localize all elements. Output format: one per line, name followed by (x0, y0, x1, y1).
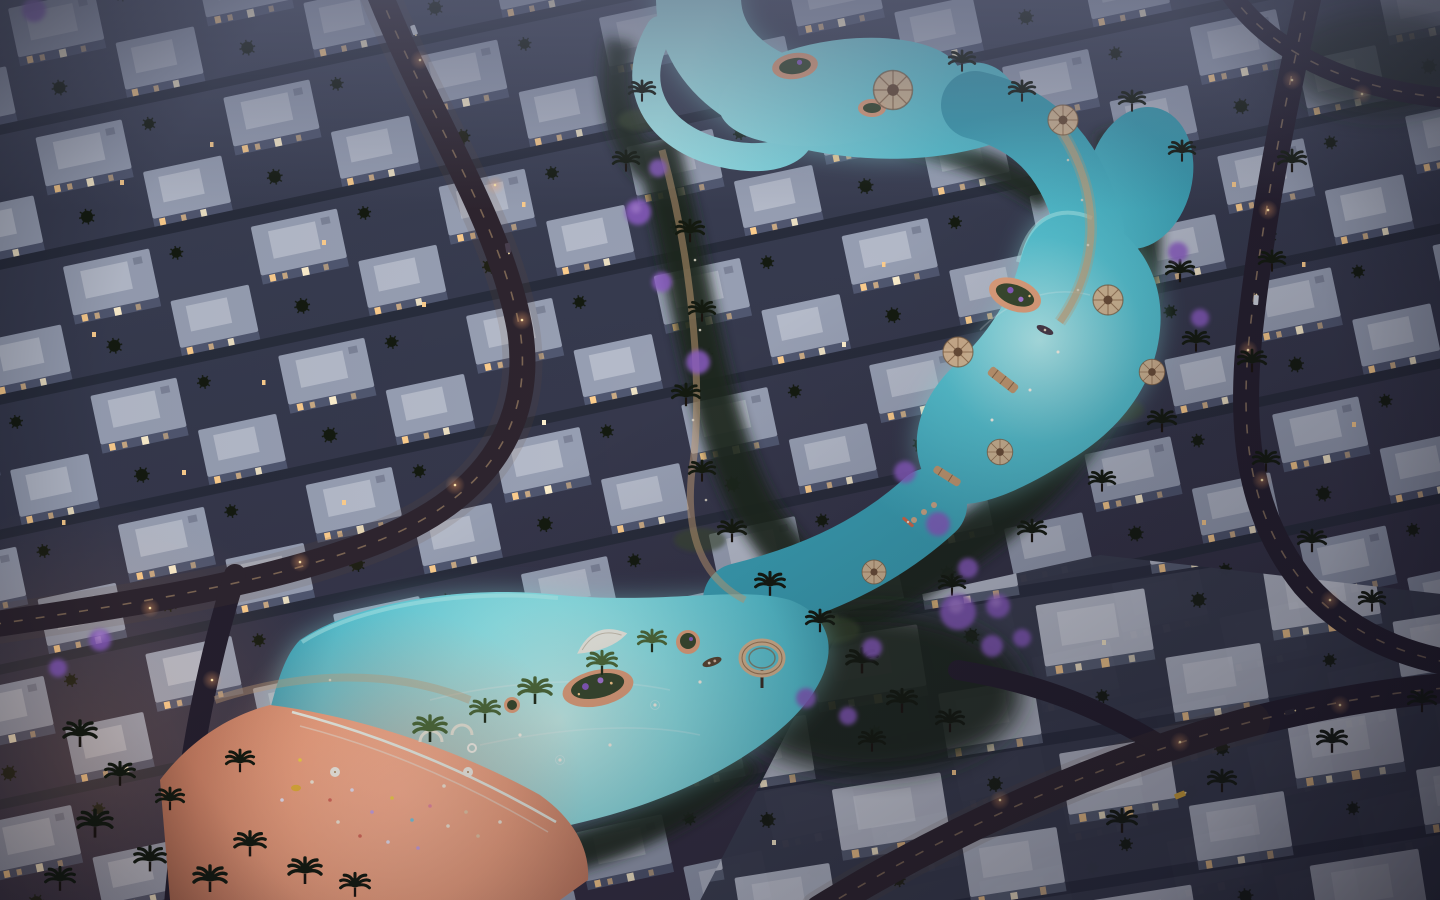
atmosphere (0, 0, 1440, 900)
aerial-community-render (0, 0, 1440, 900)
corner-shade (0, 0, 1440, 900)
render-viewport (0, 0, 1440, 900)
